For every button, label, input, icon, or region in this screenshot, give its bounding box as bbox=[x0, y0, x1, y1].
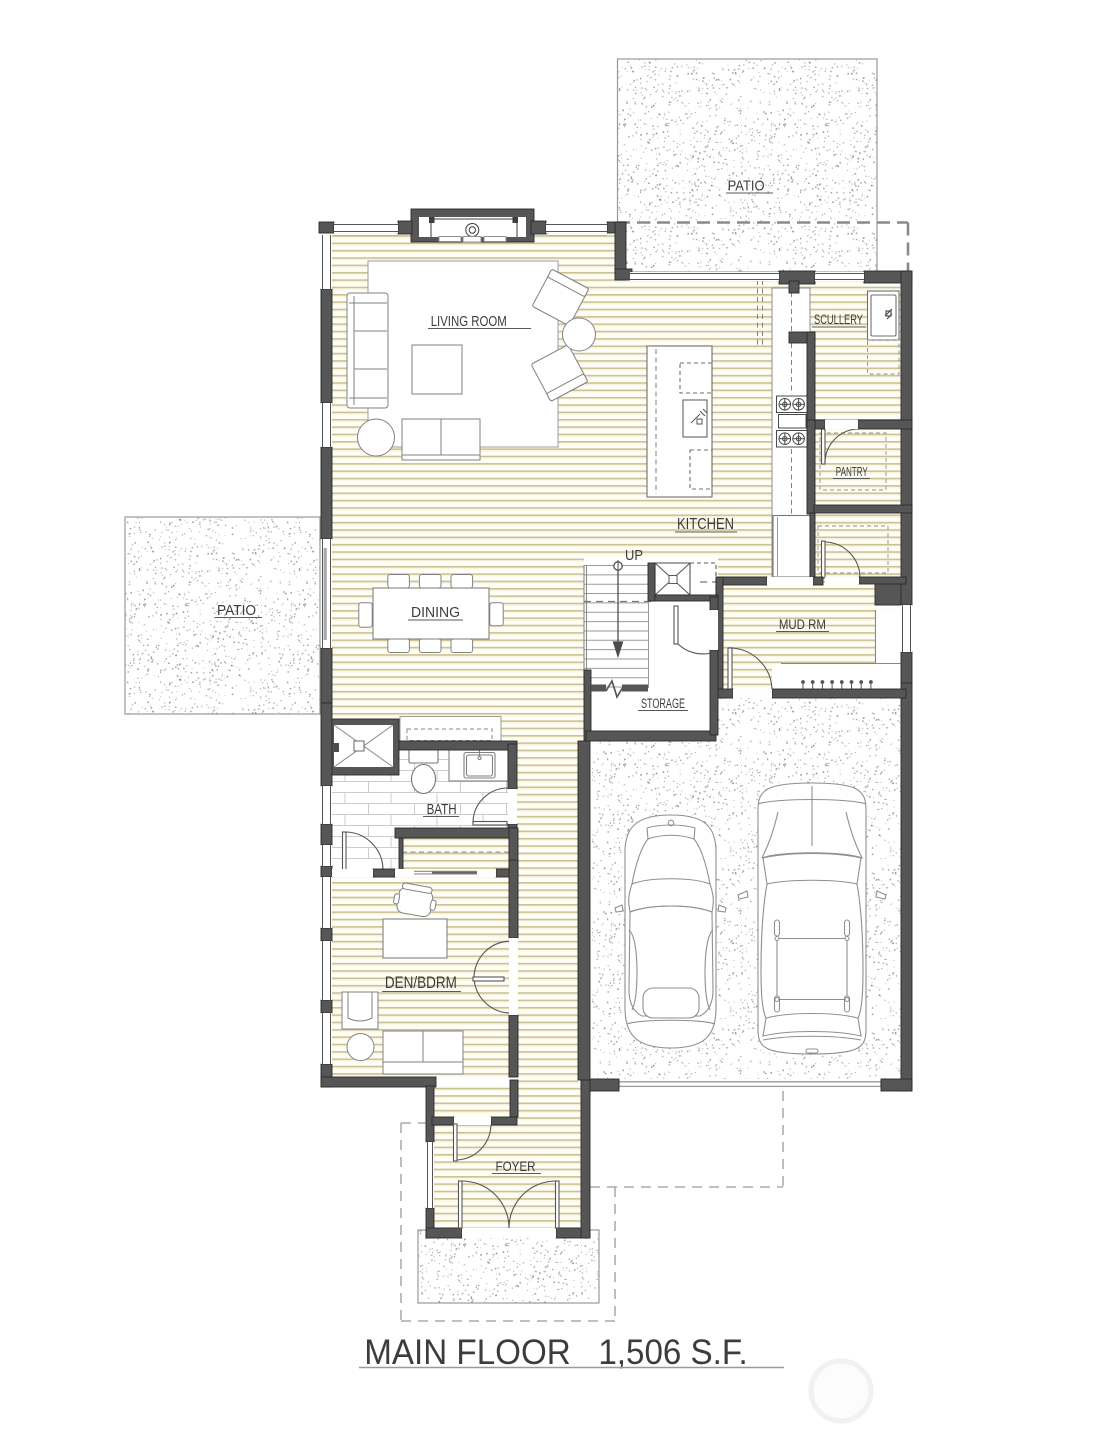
svg-text:LIVING ROOM: LIVING ROOM bbox=[431, 313, 507, 330]
svg-text:BATH: BATH bbox=[427, 801, 457, 818]
svg-text:KITCHEN: KITCHEN bbox=[677, 516, 734, 533]
svg-text:DINING: DINING bbox=[411, 604, 460, 621]
svg-text:PATIO: PATIO bbox=[728, 178, 765, 195]
svg-text:PATIO: PATIO bbox=[217, 602, 256, 619]
svg-text:UP: UP bbox=[625, 548, 643, 564]
svg-text:FOYER: FOYER bbox=[496, 1158, 536, 1174]
svg-text:MUD RM: MUD RM bbox=[779, 616, 826, 632]
svg-text:DEN/BDRM: DEN/BDRM bbox=[385, 974, 457, 992]
svg-text:MAIN FLOOR 1,506 S.F.: MAIN FLOOR 1,506 S.F. bbox=[364, 1333, 747, 1372]
svg-text:STORAGE: STORAGE bbox=[641, 696, 685, 711]
svg-text:SCULLERY: SCULLERY bbox=[814, 312, 863, 327]
svg-text:PANTRY: PANTRY bbox=[836, 465, 868, 479]
